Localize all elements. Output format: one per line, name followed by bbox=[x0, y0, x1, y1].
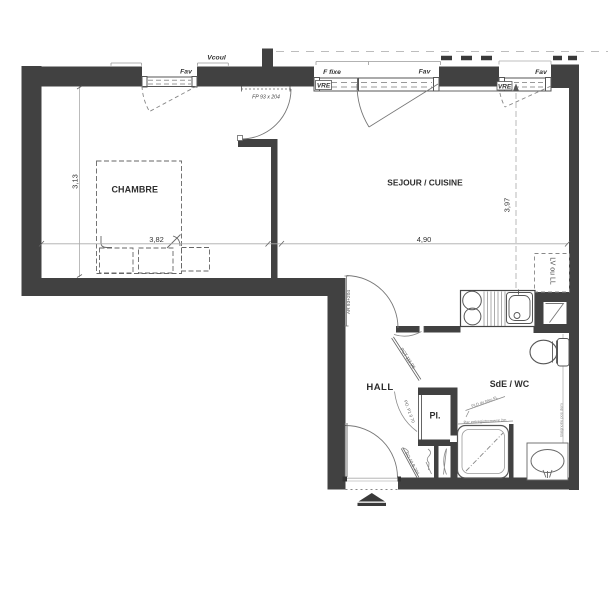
svg-text:Fav: Fav bbox=[180, 69, 193, 76]
svg-text:FP 93 x 204: FP 93 x 204 bbox=[252, 95, 280, 101]
svg-text:3,13: 3,13 bbox=[71, 174, 80, 189]
svg-text:SEJOUR / CUISINE: SEJOUR / CUISINE bbox=[387, 178, 463, 188]
svg-text:Vcoul: Vcoul bbox=[207, 55, 226, 62]
svg-text:3,82: 3,82 bbox=[149, 235, 164, 244]
svg-text:VRE: VRE bbox=[317, 83, 331, 90]
svg-text:Baignoire pos dem: Baignoire pos dem bbox=[559, 403, 564, 437]
svg-text:Pl.: Pl. bbox=[429, 411, 440, 421]
svg-text:F fixe: F fixe bbox=[323, 69, 341, 76]
svg-text:3,97: 3,97 bbox=[503, 198, 512, 213]
svg-text:SdE / WC: SdE / WC bbox=[490, 379, 530, 389]
svg-text:4,90: 4,90 bbox=[417, 235, 432, 244]
svg-text:AR 93+204: AR 93+204 bbox=[346, 290, 352, 314]
svg-text:HALL: HALL bbox=[366, 382, 393, 393]
svg-text:CHAMBRE: CHAMBRE bbox=[111, 185, 158, 195]
svg-text:Fav: Fav bbox=[535, 69, 548, 76]
svg-text:VRE: VRE bbox=[498, 83, 512, 90]
svg-text:Fav: Fav bbox=[419, 69, 432, 76]
svg-text:LV ou LL: LV ou LL bbox=[549, 257, 556, 285]
